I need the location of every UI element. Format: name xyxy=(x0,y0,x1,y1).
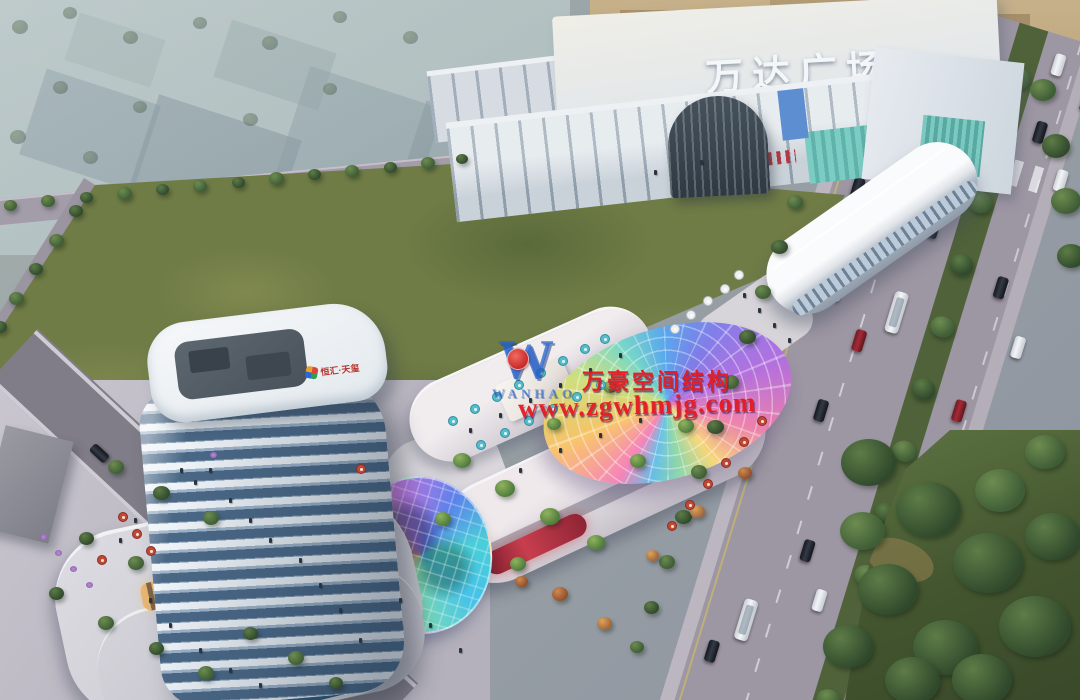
pedestrian xyxy=(429,623,432,628)
tree xyxy=(755,285,771,299)
tree xyxy=(49,587,64,600)
tree xyxy=(630,641,644,653)
tree xyxy=(243,113,258,126)
tree xyxy=(1051,188,1080,214)
flower-bed xyxy=(55,550,62,556)
tree xyxy=(858,564,918,615)
tree xyxy=(232,177,245,188)
tree xyxy=(840,512,885,550)
umbrella xyxy=(97,555,107,565)
umbrella xyxy=(670,324,680,334)
tree xyxy=(738,467,752,479)
tree xyxy=(510,557,526,571)
tree xyxy=(153,486,170,500)
tree xyxy=(975,469,1025,512)
tree xyxy=(123,31,138,44)
tree xyxy=(495,480,515,497)
tree xyxy=(128,556,144,570)
pedestrian xyxy=(359,638,362,643)
tree xyxy=(333,11,347,23)
umbrella xyxy=(500,428,510,438)
tree xyxy=(269,172,284,185)
pedestrian xyxy=(339,608,342,613)
pedestrian xyxy=(209,468,212,473)
pedestrian xyxy=(459,648,462,653)
tree xyxy=(10,130,26,144)
tree xyxy=(1030,79,1056,101)
pedestrian xyxy=(149,598,152,603)
tree xyxy=(203,511,219,525)
pedestrian xyxy=(229,668,232,673)
tree xyxy=(53,81,68,94)
tree xyxy=(587,535,605,550)
tree xyxy=(98,616,114,630)
umbrella xyxy=(356,464,366,474)
umbrella xyxy=(734,270,744,280)
tree xyxy=(675,510,692,524)
tree xyxy=(552,587,568,601)
tree xyxy=(823,625,873,668)
tree xyxy=(308,169,321,180)
tree xyxy=(9,292,24,305)
tree xyxy=(1042,134,1070,158)
tree xyxy=(156,184,169,195)
pedestrian xyxy=(599,433,602,438)
umbrella xyxy=(720,284,730,294)
tree xyxy=(646,550,659,561)
tree xyxy=(262,36,278,50)
umbrella xyxy=(721,458,731,468)
tree xyxy=(0,321,7,333)
tree xyxy=(12,20,28,34)
tree xyxy=(421,157,435,169)
umbrella xyxy=(132,529,142,539)
pedestrian xyxy=(654,170,657,175)
tree xyxy=(117,187,132,200)
tree xyxy=(841,439,896,486)
pedestrian xyxy=(319,583,322,588)
tree xyxy=(384,162,397,173)
umbrella xyxy=(470,404,480,414)
tree xyxy=(4,200,17,211)
tree xyxy=(1057,244,1080,268)
tree xyxy=(453,453,471,468)
tree xyxy=(896,482,961,537)
tree xyxy=(133,101,147,113)
tree xyxy=(953,533,1023,593)
pedestrian xyxy=(773,323,776,328)
pedestrian xyxy=(758,308,761,313)
tree xyxy=(83,151,98,164)
tree xyxy=(1025,435,1065,469)
tree xyxy=(885,657,940,700)
pedestrian xyxy=(259,683,262,688)
pedestrian xyxy=(399,598,402,603)
umbrella xyxy=(739,437,749,447)
tree xyxy=(108,460,124,474)
umbrella xyxy=(685,500,695,510)
tree xyxy=(771,240,788,254)
pedestrian xyxy=(229,498,232,503)
pedestrian xyxy=(559,448,562,453)
tree xyxy=(80,192,93,203)
tree xyxy=(456,154,468,164)
wanhao-logo-badge xyxy=(507,348,529,370)
watermark-line2: www.zgwhmjg.com xyxy=(518,387,757,424)
pedestrian xyxy=(199,648,202,653)
tree xyxy=(288,651,304,665)
pedestrian xyxy=(169,623,172,628)
tree xyxy=(787,195,803,209)
tree xyxy=(69,205,83,217)
pedestrian xyxy=(194,480,197,485)
tree xyxy=(41,195,55,207)
umbrella xyxy=(667,521,677,531)
umbrella xyxy=(686,310,696,320)
flower-bed xyxy=(210,452,217,458)
tree xyxy=(540,508,560,525)
umbrella xyxy=(476,440,486,450)
pedestrian xyxy=(119,538,122,543)
umbrella xyxy=(118,512,128,522)
pedestrian xyxy=(519,468,522,473)
pedestrian xyxy=(743,293,746,298)
umbrella xyxy=(703,479,713,489)
watermark: W WANHAO 万豪空间结构 www.zgwhmjg.com xyxy=(490,338,780,428)
pedestrian xyxy=(788,338,791,343)
tree xyxy=(644,601,659,614)
umbrella xyxy=(703,296,713,306)
umbrella xyxy=(146,546,156,556)
tree xyxy=(323,83,337,95)
pedestrian xyxy=(469,428,472,433)
tree xyxy=(515,576,528,587)
tree xyxy=(193,180,207,192)
umbrella xyxy=(448,416,458,426)
tree xyxy=(630,454,646,468)
tree xyxy=(435,512,451,526)
tree xyxy=(345,165,359,177)
tree xyxy=(243,627,258,640)
tree xyxy=(29,263,43,275)
pedestrian xyxy=(134,518,137,523)
pedestrian xyxy=(269,538,272,543)
tree xyxy=(659,555,675,569)
tree xyxy=(1025,513,1080,560)
tree xyxy=(49,234,64,247)
flower-bed xyxy=(86,582,93,588)
tree xyxy=(597,617,612,630)
tree xyxy=(149,642,164,655)
flower-bed xyxy=(40,534,47,540)
tree xyxy=(999,596,1071,657)
tree xyxy=(63,7,77,19)
tree xyxy=(198,666,214,680)
tree xyxy=(403,31,418,44)
pedestrian xyxy=(700,160,703,165)
pedestrian xyxy=(299,558,302,563)
tree xyxy=(193,17,207,29)
pedestrian xyxy=(249,518,252,523)
tree xyxy=(952,654,1012,700)
tree xyxy=(79,532,94,545)
tree xyxy=(691,465,707,479)
aerial-render: 万达广场 恒汇·天玺 xyxy=(0,0,1080,700)
tree xyxy=(329,677,343,689)
flower-bed xyxy=(70,566,77,572)
pedestrian xyxy=(180,468,183,473)
